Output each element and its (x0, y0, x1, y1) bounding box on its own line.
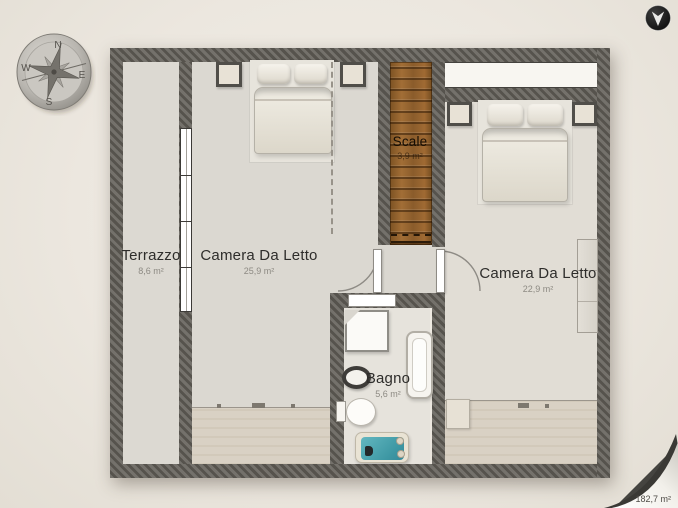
nightstand (572, 102, 597, 126)
room-label-stairs: Scale 3,9 m² (393, 134, 428, 161)
room-name: Scale (393, 134, 428, 149)
wall-south (110, 464, 610, 478)
room-label-bedroom-left: Camera Da Letto 25,9 m² (200, 247, 317, 276)
wall-stairs-west (378, 62, 390, 245)
room-name: Bagno (366, 370, 410, 387)
north-niche (445, 62, 597, 88)
terrazzo-window (180, 128, 192, 312)
window-divider (181, 175, 191, 176)
dresser (446, 399, 470, 429)
room-name: Camera Da Letto (479, 265, 596, 282)
bathtub-basin (412, 338, 427, 392)
window-glass-line (186, 129, 187, 311)
wall-east (597, 48, 610, 478)
floor-mark (545, 404, 549, 408)
nightstand (340, 62, 366, 87)
toilet-tank (336, 401, 346, 422)
compass-south-label: S (46, 97, 53, 108)
window-divider (181, 221, 191, 222)
room-name: Camera Da Letto (200, 247, 317, 264)
pillow (527, 104, 563, 126)
shower (345, 310, 389, 352)
bedroom-left-lower-floor (192, 407, 330, 465)
floor-mark (252, 403, 265, 408)
shower-door-fold (345, 310, 360, 325)
window-divider (181, 267, 191, 268)
compass-west-label: W (21, 63, 31, 74)
jacuzzi-tub (355, 432, 409, 463)
floor-mark (217, 404, 221, 408)
room-label-bedroom-right: Camera Da Letto 22,9 m² (479, 265, 596, 294)
stairs-edge-line (391, 241, 431, 243)
total-area-label: 182,7 m² (635, 494, 671, 504)
room-label-terrazzo: Terrazzo 8,6 m² (121, 247, 180, 276)
collapse-button[interactable] (644, 4, 672, 32)
landing-floor (378, 245, 445, 293)
wall-stairs-east (432, 62, 445, 247)
pillow (487, 104, 523, 126)
room-area: 25,9 m² (200, 266, 317, 276)
stairs-cut-line (391, 234, 431, 236)
compass-east-label: E (79, 70, 86, 81)
room-area: 3,9 m² (393, 151, 428, 161)
nightstand (216, 62, 242, 87)
soap-dish (396, 437, 404, 445)
pillow (257, 64, 290, 84)
wall-north (110, 48, 610, 62)
nightstand (447, 102, 472, 126)
room-area: 22,9 m² (479, 284, 596, 294)
room-area: 5,6 m² (366, 389, 410, 399)
toilet (346, 398, 376, 426)
door-bedroom-left (373, 249, 382, 293)
wall-bathroom-east (432, 293, 445, 464)
floor-mark (518, 403, 529, 408)
door-bathroom (348, 294, 396, 307)
floor-mark (291, 404, 295, 408)
compass-north-label: N (54, 40, 61, 51)
jacuzzi-faucet (365, 446, 373, 456)
ceiling-break-line (331, 62, 333, 234)
room-label-bathroom: Bagno 5,6 m² (366, 370, 410, 399)
soap-dish (397, 450, 405, 458)
pillow (294, 64, 327, 84)
floorplan-viewer: N E S W (0, 0, 678, 508)
door-bedroom-right (436, 249, 445, 293)
compass-rose-icon: N E S W (14, 30, 96, 116)
room-area: 8,6 m² (121, 266, 180, 276)
bed-blanket (254, 87, 332, 154)
bed-blanket (482, 128, 568, 202)
room-name: Terrazzo (121, 247, 180, 264)
